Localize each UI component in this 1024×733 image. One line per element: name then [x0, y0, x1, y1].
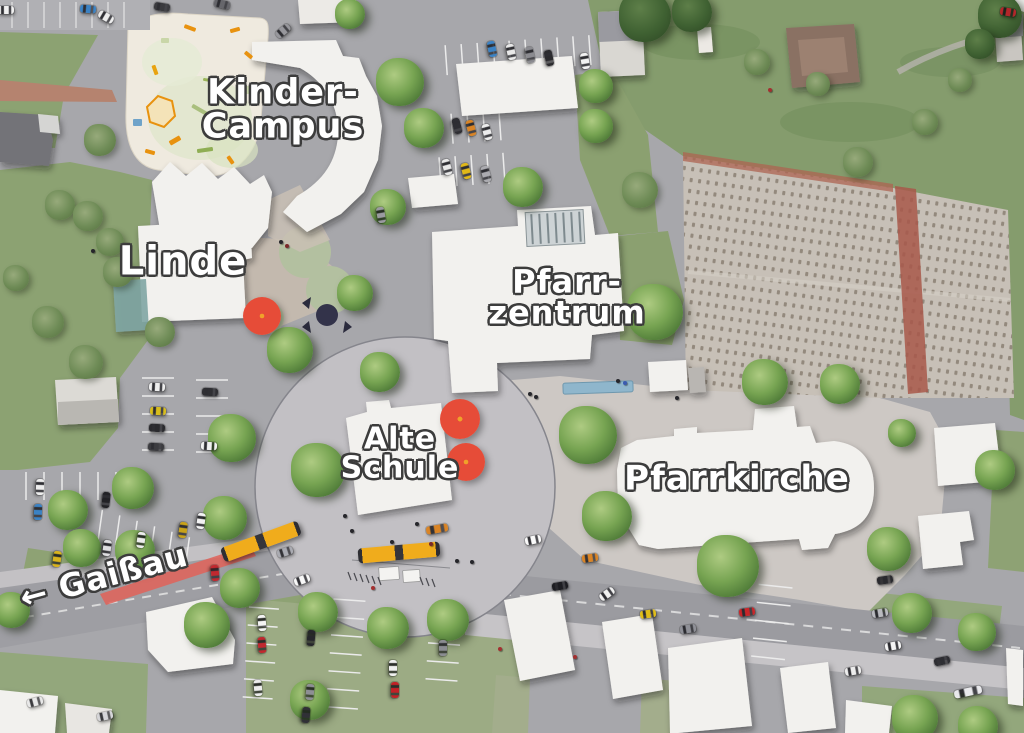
site-plan-map: Kinder- Campus Linde Pfarr- zentrum Alte… — [0, 0, 1024, 733]
label-linde: Linde — [119, 242, 247, 281]
label-kinder-campus: Kinder- Campus — [202, 76, 365, 145]
label-alte-schule: Alte Schule — [341, 425, 460, 484]
label-pfarrzentrum: Pfarr- zentrum — [488, 267, 645, 330]
map-labels-layer: Kinder- Campus Linde Pfarr- zentrum Alte… — [0, 0, 1024, 733]
label-pfarrkirche: Pfarrkirche — [624, 462, 850, 495]
label-gaissau: ← Gaißau — [17, 540, 191, 615]
